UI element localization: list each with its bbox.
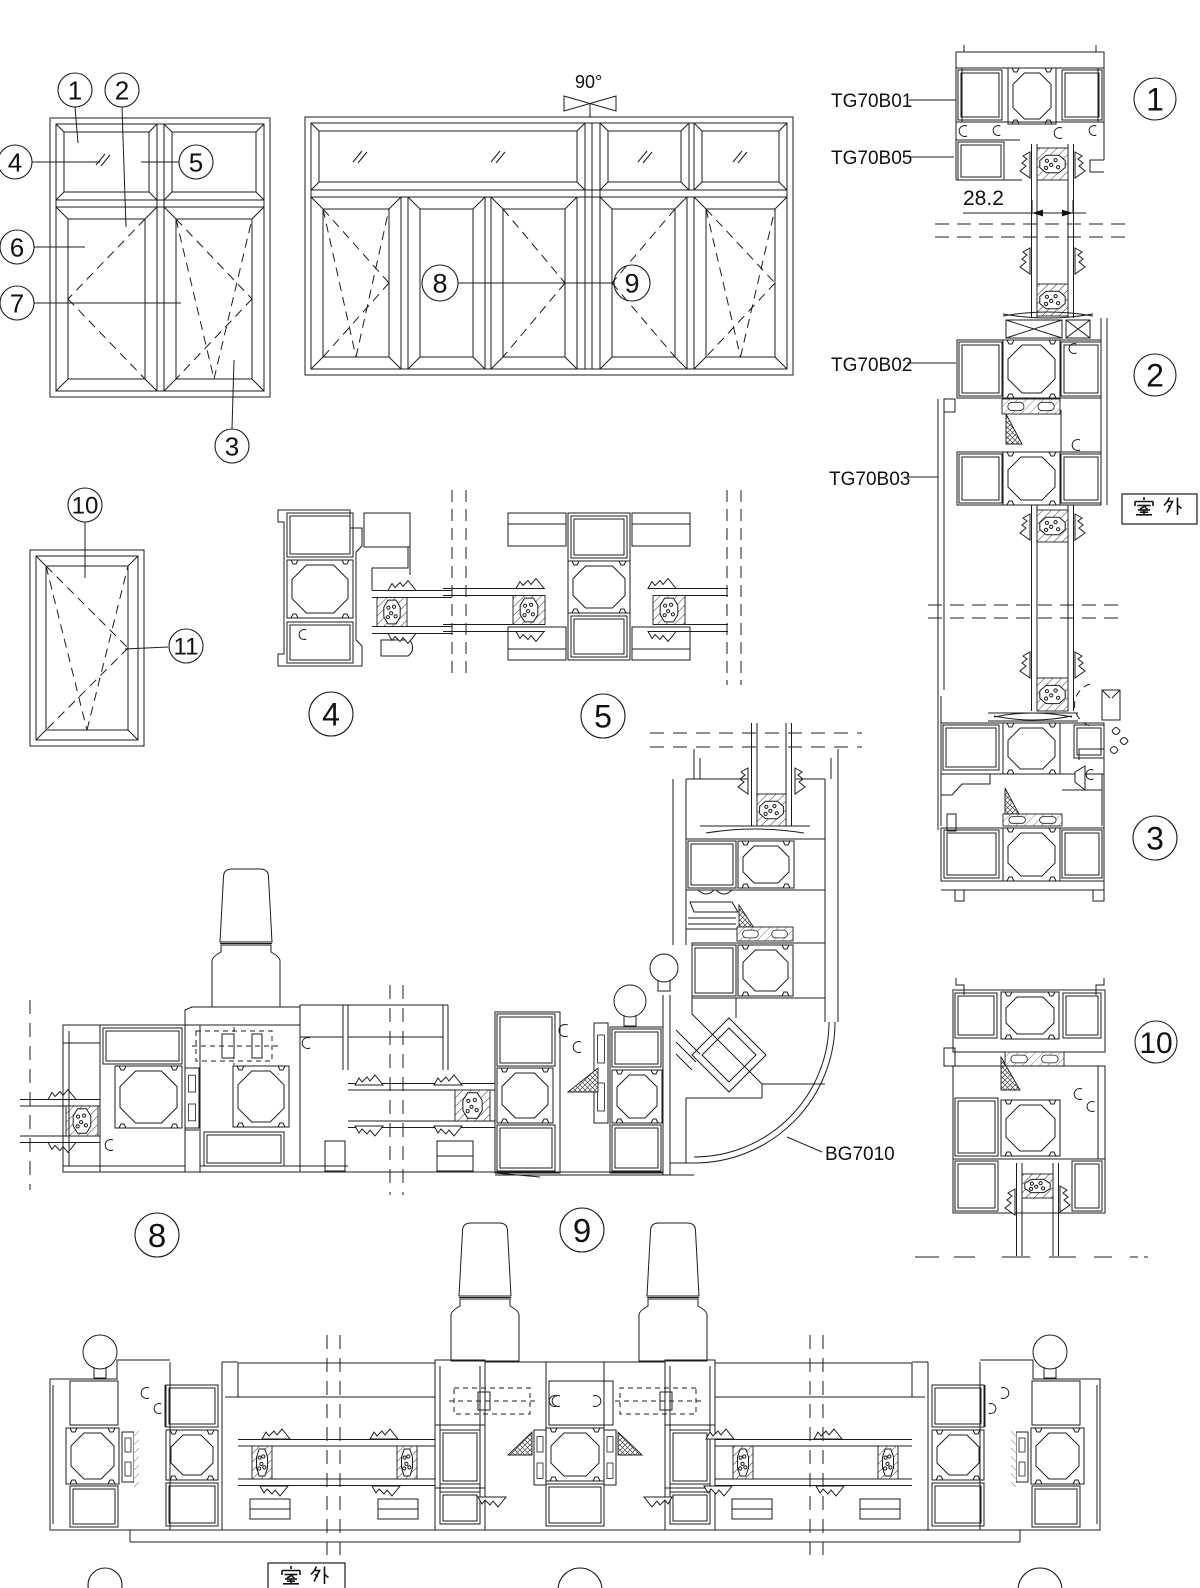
svg-text:3: 3 [225, 431, 239, 461]
svg-text:3: 3 [1146, 821, 1164, 857]
svg-text:8: 8 [432, 269, 447, 299]
svg-text:9: 9 [624, 269, 639, 299]
svg-text:5: 5 [189, 147, 203, 177]
svg-text:1: 1 [1146, 82, 1164, 118]
svg-text:9: 9 [573, 1212, 591, 1249]
svg-text:TG70B03: TG70B03 [829, 469, 910, 490]
svg-text:28.2: 28.2 [963, 187, 1004, 210]
svg-text:2: 2 [115, 75, 129, 105]
svg-text:7: 7 [10, 288, 24, 318]
svg-text:TG70B05: TG70B05 [831, 148, 912, 169]
svg-text:TG70B01: TG70B01 [831, 91, 912, 112]
svg-text:1: 1 [68, 75, 82, 105]
svg-text:10: 10 [1139, 1027, 1172, 1060]
svg-text:TG70B02: TG70B02 [831, 355, 912, 376]
svg-text:5: 5 [594, 699, 612, 735]
svg-text:2: 2 [1146, 358, 1164, 394]
svg-text:4: 4 [322, 697, 340, 733]
svg-text:10: 10 [72, 493, 99, 520]
svg-text:6: 6 [10, 232, 24, 262]
svg-text:BG7010: BG7010 [825, 1144, 895, 1165]
svg-text:90°: 90° [575, 72, 602, 92]
svg-text:4: 4 [8, 147, 22, 177]
svg-text:8: 8 [148, 1217, 166, 1254]
svg-text:11: 11 [174, 634, 199, 661]
